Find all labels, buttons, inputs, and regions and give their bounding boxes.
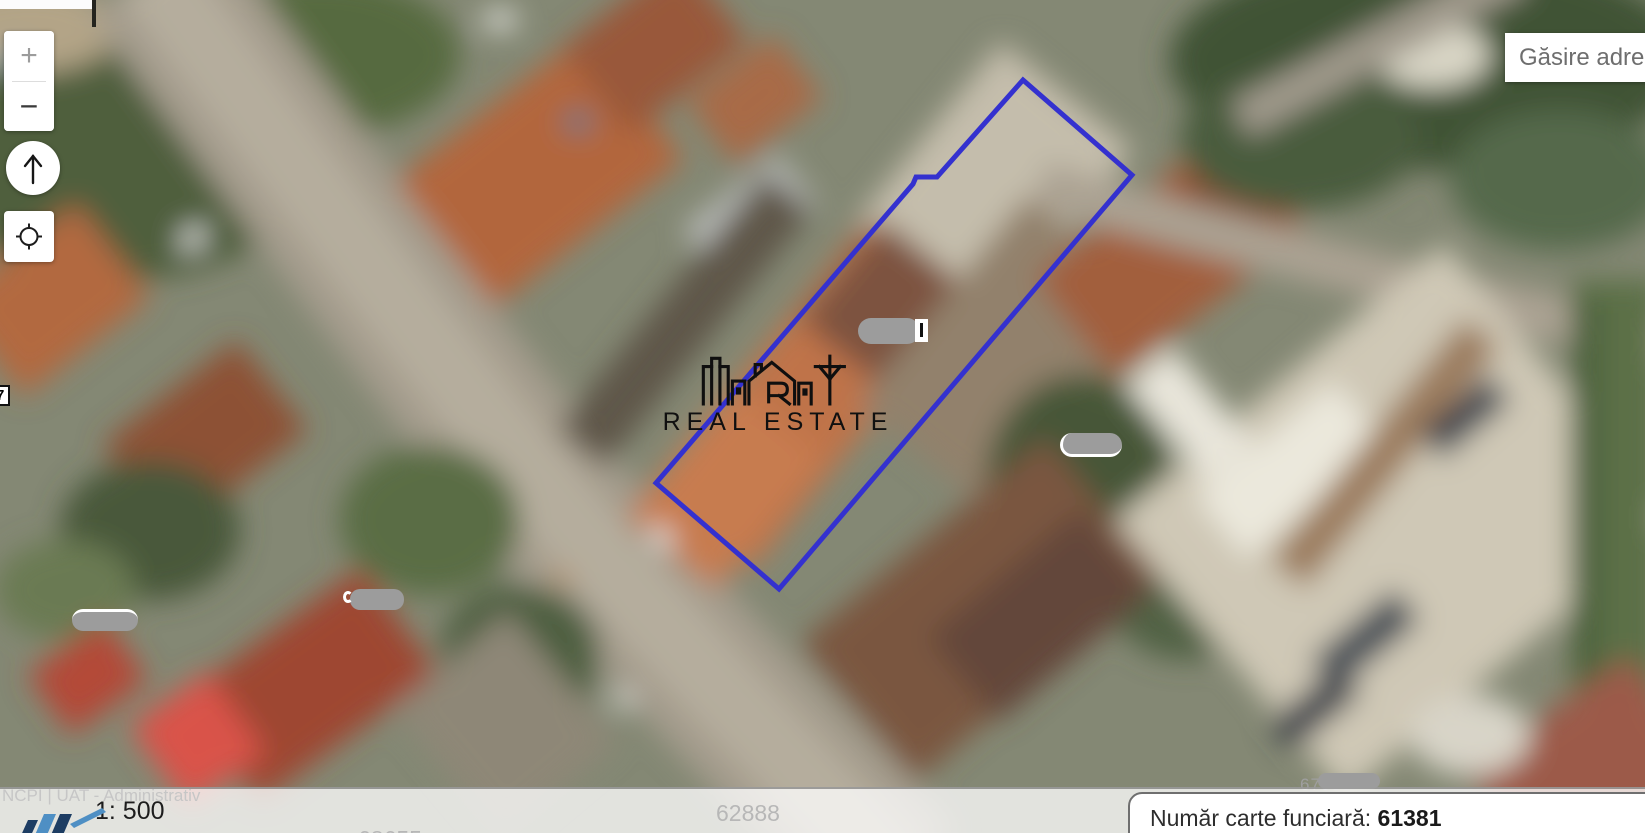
land-book-number: 61381: [1378, 805, 1442, 831]
label-remnant: [343, 591, 353, 603]
zoom-control: + −: [4, 31, 54, 131]
zoom-divider: [12, 81, 46, 82]
north-arrow-button[interactable]: [6, 141, 60, 195]
label-remnant: [915, 319, 928, 342]
redacted-label: [858, 318, 920, 344]
house-number-label: 7: [0, 385, 10, 406]
zoom-in-button[interactable]: +: [4, 31, 54, 81]
land-book-label: Număr carte funciară:: [1150, 805, 1371, 831]
ancpi-logo: [12, 806, 137, 833]
imagery-white-strip: [0, 0, 94, 9]
search-widget: [1505, 33, 1645, 82]
parcel-number-label: 62888: [716, 800, 780, 827]
locate-button[interactable]: [4, 211, 54, 262]
map-canvas[interactable]: 7 67933 REAL ESTATE + −: [0, 0, 1645, 833]
search-input[interactable]: [1505, 33, 1645, 82]
redacted-label: [1060, 433, 1122, 457]
zoom-out-button[interactable]: −: [4, 81, 54, 131]
redacted-label: [350, 589, 404, 610]
redacted-label: [72, 609, 138, 631]
parcel-number-label: 68655: [358, 826, 422, 833]
up-arrow-icon: [6, 141, 60, 195]
satellite-imagery: [0, 0, 1645, 833]
crosshair-icon: [4, 211, 54, 262]
imagery-dark-line: [92, 0, 96, 27]
land-book-popup: Număr carte funciară: 61381: [1128, 792, 1645, 833]
redacted-label: [1318, 773, 1380, 789]
